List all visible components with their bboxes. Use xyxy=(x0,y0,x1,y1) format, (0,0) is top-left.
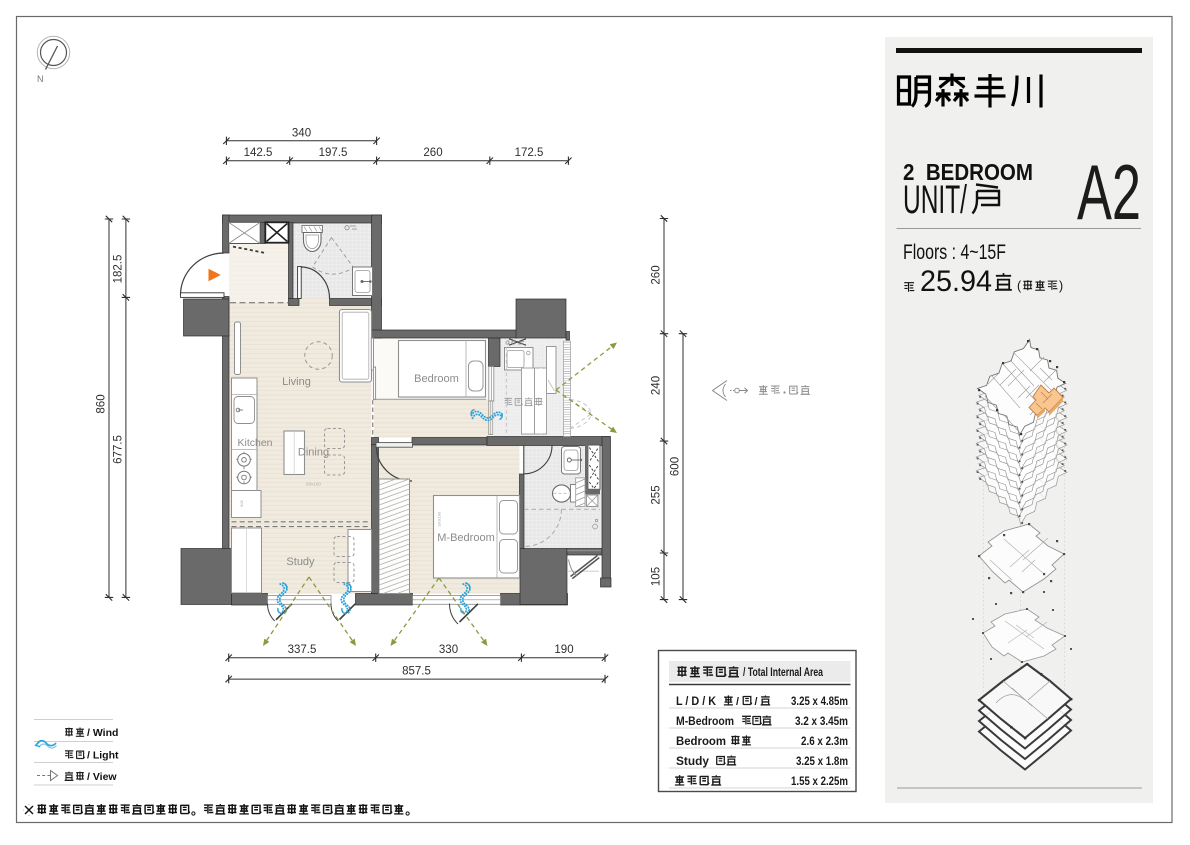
svg-text:M-Bedroom: M-Bedroom xyxy=(676,714,734,728)
svg-text:197.5: 197.5 xyxy=(319,147,348,159)
svg-text:Study: Study xyxy=(676,754,709,768)
svg-text:/: / xyxy=(755,696,758,708)
svg-text:25.94: 25.94 xyxy=(920,265,992,298)
svg-text:3.25 x 4.85m: 3.25 x 4.85m xyxy=(791,694,848,708)
svg-text:Bedroom: Bedroom xyxy=(414,373,459,385)
svg-text:180x188: 180x188 xyxy=(437,511,442,527)
svg-text:UNIT/: UNIT/ xyxy=(903,178,968,222)
svg-text:Living: Living xyxy=(282,376,311,388)
svg-text:A2: A2 xyxy=(1077,148,1141,236)
svg-text:/ Total Internal Area: / Total Internal Area xyxy=(743,665,823,679)
svg-text:172.5: 172.5 xyxy=(515,147,544,159)
svg-text:3.2 x 3.45m: 3.2 x 3.45m xyxy=(795,714,848,728)
svg-text:N: N xyxy=(37,74,44,84)
svg-text:/: / xyxy=(736,696,739,708)
svg-text:Dining: Dining xyxy=(298,447,329,459)
svg-text:142.5: 142.5 xyxy=(244,147,273,159)
svg-text:260: 260 xyxy=(423,147,442,159)
svg-text:M-Bedroom: M-Bedroom xyxy=(437,532,494,544)
svg-text:240: 240 xyxy=(651,376,663,395)
svg-text:260: 260 xyxy=(651,265,663,284)
svg-text:182.5: 182.5 xyxy=(112,255,124,284)
svg-text:677.5: 677.5 xyxy=(112,435,124,464)
svg-text:1.55 x 2.25m: 1.55 x 2.25m xyxy=(791,774,848,788)
svg-text:/ Wind: / Wind xyxy=(87,727,118,739)
svg-text:340: 340 xyxy=(292,127,311,139)
svg-text:L / D / K: L / D / K xyxy=(676,694,716,708)
svg-text:190: 190 xyxy=(554,644,573,656)
svg-text:3.25 x 1.8m: 3.25 x 1.8m xyxy=(796,754,848,768)
svg-text:105: 105 xyxy=(651,567,663,586)
svg-text:80x160: 80x160 xyxy=(306,482,321,487)
svg-text:857.5: 857.5 xyxy=(402,666,431,678)
svg-text:/ Light: / Light xyxy=(87,750,119,762)
svg-text:Bedroom: Bedroom xyxy=(676,734,726,748)
svg-text:908: 908 xyxy=(239,500,244,507)
svg-text:255: 255 xyxy=(651,485,663,504)
svg-text:600: 600 xyxy=(670,457,682,476)
svg-text:Study: Study xyxy=(286,556,315,568)
svg-text:): ) xyxy=(1059,279,1063,293)
svg-text:330: 330 xyxy=(439,644,458,656)
svg-text:2.6 x 2.3m: 2.6 x 2.3m xyxy=(801,734,848,748)
svg-text:860: 860 xyxy=(96,394,108,413)
svg-text:337.5: 337.5 xyxy=(288,644,317,656)
svg-text:Kitchen: Kitchen xyxy=(237,437,272,449)
svg-text:/ View: / View xyxy=(87,771,117,783)
svg-text:Floors : 4~15F: Floors : 4~15F xyxy=(903,241,1006,264)
